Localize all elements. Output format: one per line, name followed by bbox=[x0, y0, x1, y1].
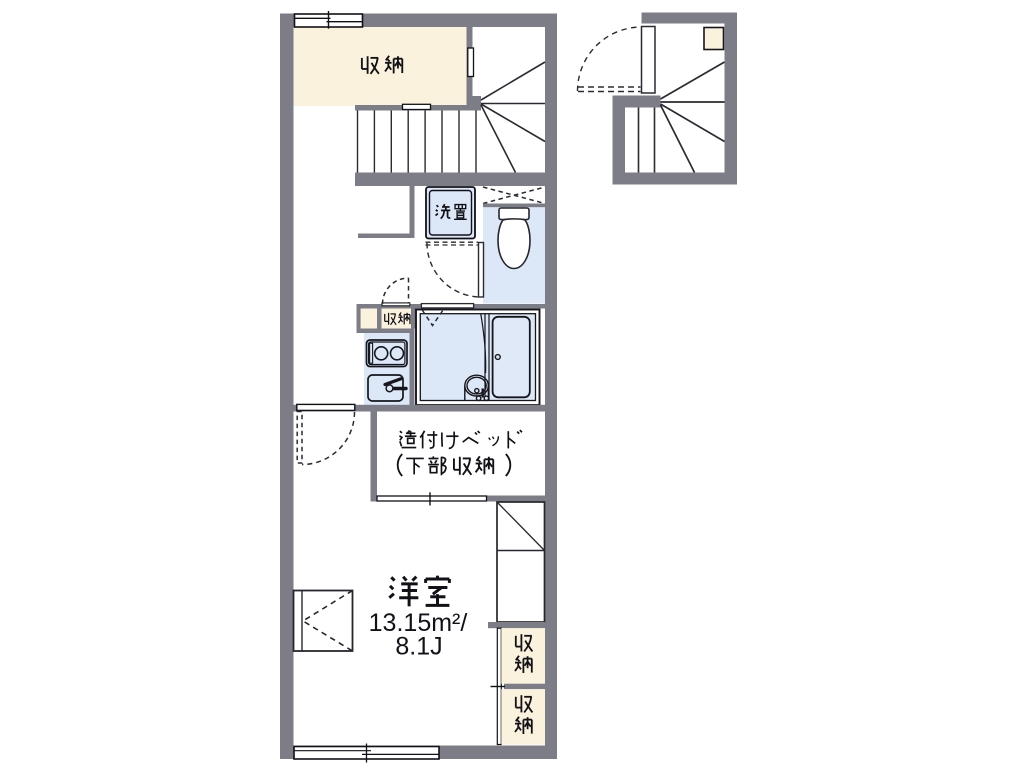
svg-text:8.1J: 8.1J bbox=[395, 633, 442, 661]
